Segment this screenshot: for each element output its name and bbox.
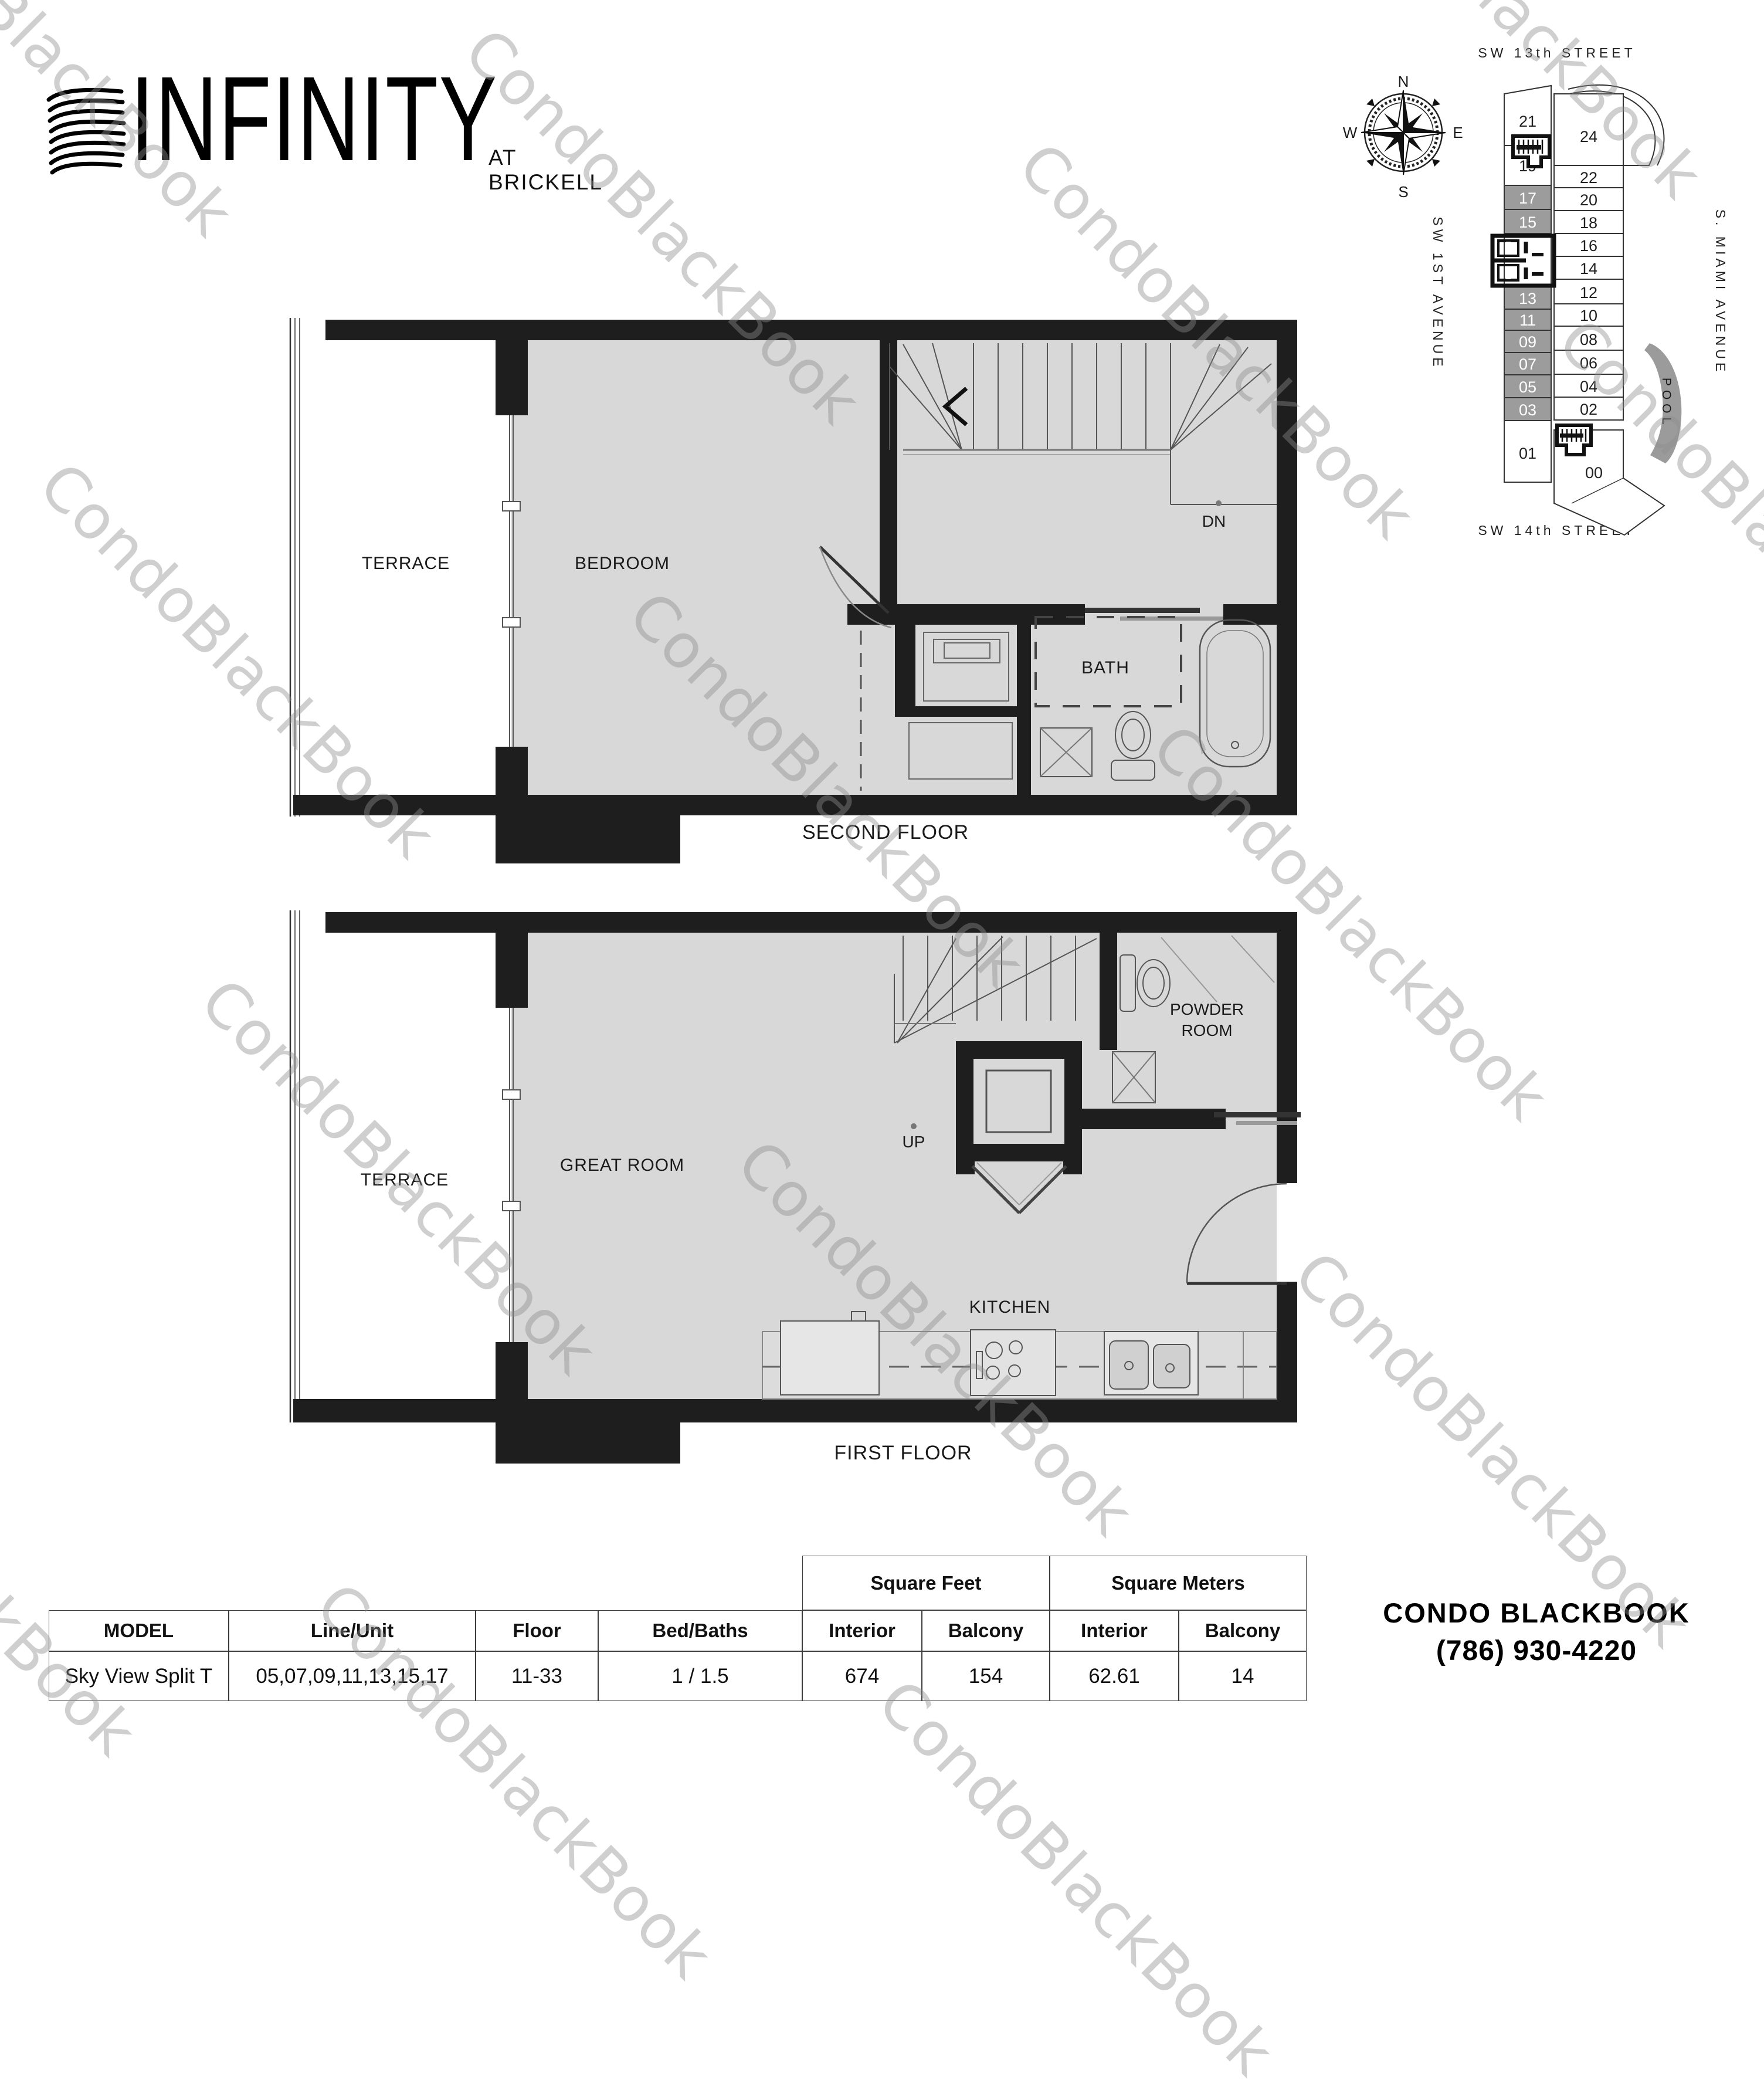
unit-13: 13 bbox=[1519, 290, 1536, 307]
value-sm-interior: 62.61 bbox=[1050, 1651, 1179, 1701]
powder-room-label2: ROOM bbox=[1181, 1021, 1232, 1039]
unit-07: 07 bbox=[1519, 355, 1536, 373]
second-floor-caption: SECOND FLOOR bbox=[802, 821, 969, 844]
bath-label: BATH bbox=[1081, 658, 1129, 678]
value-sm-balcony: 14 bbox=[1179, 1651, 1307, 1701]
watermark: CondoBlackBook bbox=[864, 1666, 1288, 2090]
unit-21: 21 bbox=[1519, 113, 1536, 130]
col-sm-balcony: Balcony bbox=[1179, 1610, 1307, 1651]
unit-11: 11 bbox=[1519, 311, 1536, 329]
terrace-railing bbox=[290, 318, 300, 817]
compass-icon: N S W E bbox=[1343, 73, 1463, 201]
unit-20: 20 bbox=[1580, 191, 1597, 209]
up-marker bbox=[911, 1123, 917, 1129]
unit-15: 15 bbox=[1519, 214, 1536, 231]
contact-brand: CONDO BLACKBOOK bbox=[1337, 1597, 1736, 1629]
unit-08: 08 bbox=[1580, 331, 1597, 348]
kitchen-label: KITCHEN bbox=[969, 1298, 1051, 1317]
value-bed-baths: 1 / 1.5 bbox=[598, 1651, 802, 1701]
avenue-right-label: S. MIAMI AVENUE bbox=[1713, 209, 1728, 375]
unit-09: 09 bbox=[1519, 333, 1536, 351]
unit-24: 24 bbox=[1580, 128, 1597, 145]
first-floor-caption: FIRST FLOOR bbox=[834, 1442, 972, 1464]
terrace-label: TERRACE bbox=[361, 1170, 449, 1190]
value-model: Sky View Split T bbox=[49, 1651, 229, 1701]
building-east-column bbox=[1554, 85, 1664, 535]
unit-12: 12 bbox=[1580, 284, 1597, 302]
unit-06: 06 bbox=[1580, 354, 1597, 372]
col-model: MODEL bbox=[49, 1610, 229, 1651]
group-header-square-meters: Square Meters bbox=[1050, 1556, 1307, 1610]
unit-05: 05 bbox=[1519, 378, 1536, 396]
unit-04: 04 bbox=[1580, 378, 1597, 395]
terrace-railing bbox=[290, 910, 300, 1422]
dn-label: DN bbox=[1202, 512, 1226, 530]
spec-table: Square Feet Square Meters MODEL Line/Uni… bbox=[49, 1556, 1307, 1701]
street-top-label: SW 13th STREET bbox=[1478, 45, 1636, 60]
brand-name: INFINITY bbox=[130, 69, 498, 169]
first-floor-plan: TERRACE GREAT ROOM UP POWDER ROOM KITCHE… bbox=[281, 903, 1314, 1484]
unit-14: 14 bbox=[1580, 260, 1597, 277]
infinity-logo-icon bbox=[44, 87, 126, 175]
key-plan: SW 13th STREET SW 14th STREET SW 1ST AVE… bbox=[1319, 12, 1764, 581]
great-room-label: GREAT ROOM bbox=[560, 1156, 684, 1175]
unit-00: 00 bbox=[1585, 464, 1603, 482]
kitchen-sink-icon bbox=[1104, 1332, 1198, 1395]
col-sf-balcony: Balcony bbox=[922, 1610, 1050, 1651]
pool-icon: POOL bbox=[1644, 343, 1681, 463]
compass-w: W bbox=[1343, 124, 1358, 141]
terrace-label: TERRACE bbox=[362, 554, 450, 573]
second-floor-plan: TERRACE BEDROOM BATH DN SECOND FLOOR bbox=[281, 311, 1314, 874]
floorplan-sheet: { "logo": { "name": "INFINITY", "tagline… bbox=[0, 0, 1764, 1763]
unit-02: 02 bbox=[1580, 401, 1597, 418]
value-line-unit: 05,07,09,11,13,15,17 bbox=[229, 1651, 476, 1701]
unit-17: 17 bbox=[1519, 189, 1536, 207]
pool-label: POOL bbox=[1660, 378, 1673, 428]
compass-n: N bbox=[1398, 73, 1409, 90]
value-floor: 11-33 bbox=[476, 1651, 598, 1701]
avenue-left-label: SW 1ST AVENUE bbox=[1430, 216, 1446, 370]
brand-tagline: AT BRICKELL bbox=[489, 145, 603, 195]
contact-phone: (786) 930-4220 bbox=[1337, 1635, 1736, 1667]
unit-10: 10 bbox=[1580, 307, 1597, 324]
col-sm-interior: Interior bbox=[1050, 1610, 1179, 1651]
compass-s: S bbox=[1398, 183, 1408, 201]
fridge-icon bbox=[781, 1312, 879, 1395]
unit-01: 01 bbox=[1519, 445, 1536, 462]
unit-18: 18 bbox=[1580, 214, 1597, 232]
unit-22: 22 bbox=[1580, 169, 1597, 187]
value-sf-balcony: 154 bbox=[922, 1651, 1050, 1701]
group-header-square-feet: Square Feet bbox=[802, 1556, 1050, 1610]
stove-icon bbox=[971, 1330, 1056, 1395]
col-floor: Floor bbox=[476, 1610, 598, 1651]
up-label: UP bbox=[903, 1133, 925, 1151]
powder-room-label: POWDER bbox=[1170, 1000, 1244, 1018]
col-sf-interior: Interior bbox=[802, 1610, 922, 1651]
compass-e: E bbox=[1453, 124, 1463, 141]
col-bed-baths: Bed/Baths bbox=[598, 1610, 802, 1651]
unit-03: 03 bbox=[1519, 401, 1536, 419]
col-line-unit: Line/Unit bbox=[229, 1610, 476, 1651]
bedroom-label: BEDROOM bbox=[575, 554, 670, 573]
value-sf-interior: 674 bbox=[802, 1651, 922, 1701]
contact-block: CONDO BLACKBOOK (786) 930-4220 bbox=[1337, 1597, 1736, 1667]
unit-16: 16 bbox=[1580, 237, 1597, 255]
